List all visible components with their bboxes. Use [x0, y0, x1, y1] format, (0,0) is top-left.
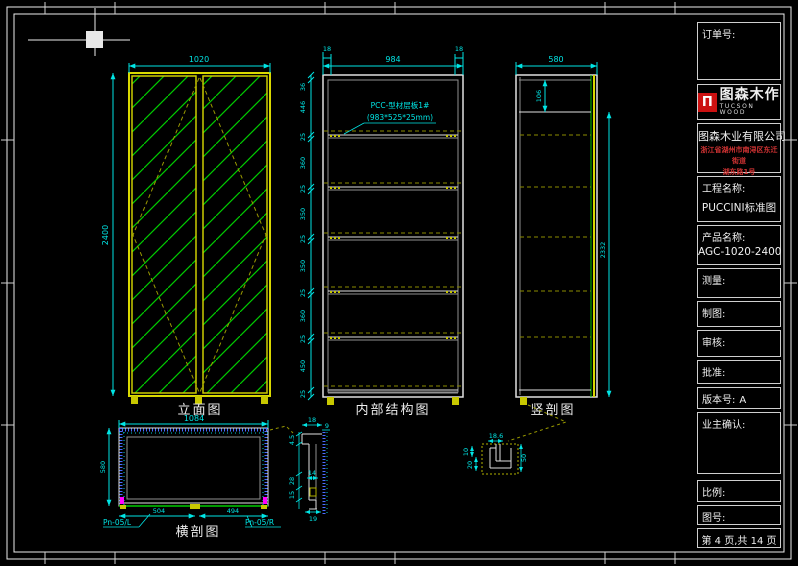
internal-left-dim-chain [308, 72, 314, 400]
svg-text:360: 360 [299, 157, 307, 169]
scale-box: 比例: [697, 480, 781, 502]
draft-box: 制图: [697, 301, 781, 327]
dim-door-right: 494 [227, 507, 239, 515]
svg-text:350: 350 [299, 208, 307, 220]
draft-label: 制图: [702, 305, 725, 320]
glass-door-right [203, 76, 267, 393]
svg-text:360: 360 [299, 310, 307, 322]
dim-internal-width: 984 [385, 55, 400, 64]
dim-base-c: 50 [520, 454, 528, 462]
base-profile-detail: 18.6 10 20 50 [462, 432, 528, 474]
dim-door-d: 14 [308, 469, 316, 477]
dim-door-top2: 9 [325, 422, 329, 430]
svg-text:PCC-型材层板1#: PCC-型材层板1# [371, 100, 430, 110]
approve-box: 批准: [697, 360, 781, 384]
svg-text:25: 25 [299, 185, 307, 193]
dim-elevation-height: 2400 [101, 225, 110, 245]
product-value: AGC-1020-2400 [698, 246, 780, 258]
shelves [324, 131, 462, 393]
company-name: 图森木业有限公司 [698, 128, 780, 144]
dim-gap-right: 18 [455, 45, 463, 53]
dim-door-a: 4.5 [288, 435, 296, 445]
dim-door-c: 15 [288, 491, 296, 499]
order-number-label: 订单号: [702, 26, 735, 41]
dim-door-b: 28 [288, 477, 296, 485]
internal-structure-label: 内部结构图 [355, 402, 430, 418]
svg-text:25: 25 [299, 390, 307, 398]
tucson-logo-icon: Π [698, 93, 717, 112]
elevation-view: 1020 2400 立面图 [101, 55, 270, 418]
plan-section-view: 1084 580 504 494 Pn-05/L Pn-05/R 横剖图 [99, 414, 281, 540]
plan-dimensions [109, 420, 268, 516]
internal-structure-view: 18 984 18 36 446 25 360 25 350 25 350 25… [299, 45, 463, 418]
order-number-box: 订单号: [697, 22, 781, 80]
registration-mark [28, 8, 130, 56]
dim-plan-depth: 580 [99, 461, 107, 473]
product-label: 产品名称: [702, 229, 745, 244]
approve-label: 批准: [702, 364, 725, 379]
shelf-annotation: PCC-型材层板1# (983*525*25mm) [344, 100, 436, 134]
door-profile-detail: 18 9 4.5 28 15 14 19 [270, 416, 330, 523]
svg-text:36: 36 [299, 83, 307, 91]
svg-text:25: 25 [299, 335, 307, 343]
project-value: PUCCINI标准图 [698, 200, 780, 215]
company-box: 图森木业有限公司 浙江省湖州市南浔区东迁街道 湖东路1号 [697, 123, 781, 173]
internal-left-dim-texts: 36 446 25 360 25 350 25 350 25 360 25 45… [299, 83, 307, 398]
dim-base-top: 18.6 [489, 432, 503, 440]
dim-door-left: 504 [153, 507, 165, 515]
dim-gap-left: 18 [323, 45, 331, 53]
measure-label: 测量: [702, 272, 725, 287]
brand-name-en: TUCSON WOOD [720, 104, 780, 116]
owner-confirm-box: 业主确认: [697, 412, 781, 474]
drawing-area: 1020 2400 立面图 [0, 0, 798, 566]
company-address-line1: 浙江省湖州市南浔区东迁街道 [698, 145, 780, 167]
dim-section-height: 2332 [599, 242, 607, 259]
dim-section-depth: 580 [548, 55, 563, 64]
project-box: 工程名称: PUCCINI标准图 [697, 176, 781, 222]
scale-label: 比例: [702, 484, 725, 499]
dim-base-b: 20 [466, 461, 474, 469]
dim-door-top: 18 [308, 416, 316, 424]
dim-section-top: 106 [535, 90, 543, 102]
svg-text:25: 25 [299, 235, 307, 243]
page-info: 第 4 页,共 14 页 [698, 532, 780, 547]
svg-text:446: 446 [299, 101, 307, 113]
svg-text:450: 450 [299, 360, 307, 372]
hinge-mark-right [263, 497, 267, 504]
drawing-no-label: 图号: [702, 509, 725, 524]
version-box: 版本号:A [697, 387, 781, 409]
review-label: 审核: [702, 334, 725, 349]
dim-base-a: 10 [462, 448, 470, 456]
svg-text:(983*525*25mm): (983*525*25mm) [367, 113, 433, 122]
vertical-section-label: 竖剖图 [530, 403, 575, 418]
svg-text:25: 25 [299, 289, 307, 297]
svg-text:25: 25 [299, 133, 307, 141]
logo-box: Π 图森木作 TUCSON WOOD [697, 84, 781, 120]
measure-box: 测量: [697, 268, 781, 298]
foot [520, 397, 527, 405]
vertical-section-view: 580 106 2332 竖剖图 [508, 55, 609, 441]
version-label: 版本号:A [702, 391, 746, 406]
dim-plan-width: 1084 [184, 414, 204, 423]
section-shelf-lines [520, 135, 591, 337]
company-address: 浙江省湖州市南浔区东迁街道 湖东路1号 [698, 145, 780, 179]
panel-hatch [119, 428, 268, 506]
version-value: A [739, 395, 746, 406]
panel-tag-right: Pn-05/R [245, 518, 274, 527]
hinge-mark-left [120, 497, 124, 504]
page-info-box: 第 4 页,共 14 页 [697, 528, 781, 548]
owner-confirm-label: 业主确认: [702, 416, 745, 431]
brand-name: 图森木作 [720, 88, 780, 102]
dim-door-e: 19 [309, 515, 317, 523]
svg-text:350: 350 [299, 260, 307, 272]
panel-tag-left: Pn-05/L [103, 518, 132, 527]
drawing-no-box: 图号: [697, 505, 781, 525]
cad-sheet: 1020 2400 立面图 [0, 0, 798, 566]
project-label: 工程名称: [702, 180, 745, 195]
review-box: 审核: [697, 330, 781, 357]
detail-leader-door [270, 426, 293, 433]
glass-door-left [132, 76, 196, 393]
title-block: 订单号: Π 图森木作 TUCSON WOOD 图森木业有限公司 浙江省湖州市南… [694, 14, 784, 552]
plan-section-label: 横剖图 [175, 525, 220, 540]
dim-elevation-width: 1020 [189, 55, 209, 64]
product-box: 产品名称: AGC-1020-2400 [697, 225, 781, 265]
seal-strip [310, 488, 316, 496]
